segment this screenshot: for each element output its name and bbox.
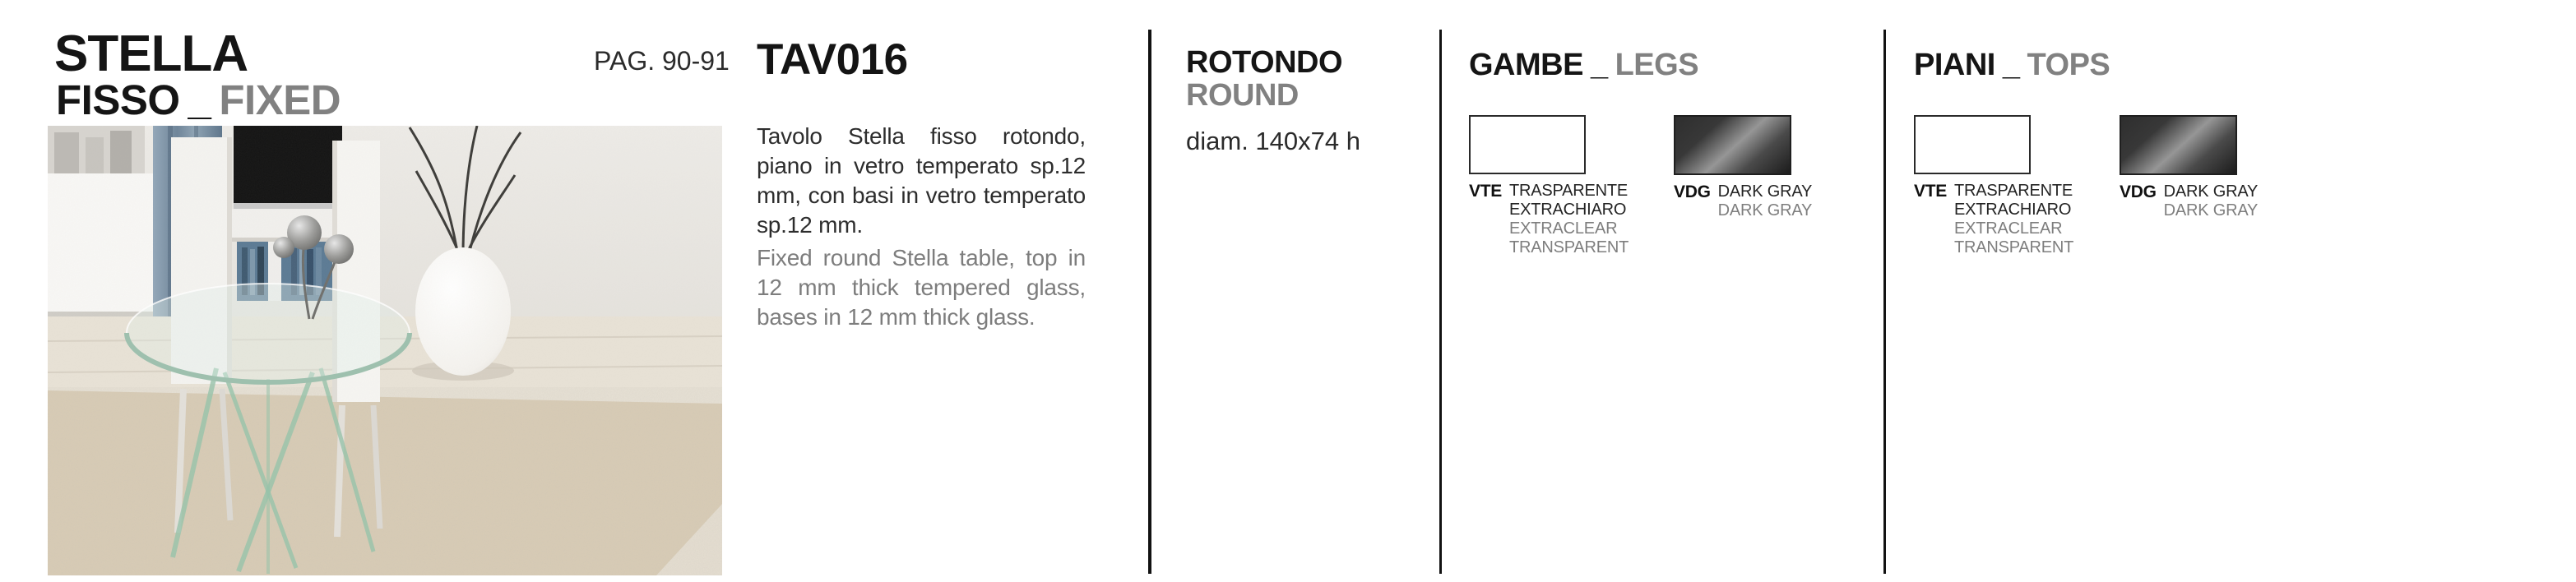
swatch-dark-gray <box>2120 115 2237 175</box>
swatch-label: VTE TRASPARENTE EXTRACHIARO EXTRACLEAR T… <box>1914 182 2120 257</box>
column-divider <box>1148 30 1151 574</box>
tops-swatch-vte: VTE TRASPARENTE EXTRACHIARO EXTRACLEAR T… <box>1914 115 2120 257</box>
tops-heading: PIANI_TOPS <box>1914 48 2110 83</box>
variant-title: FISSO_FIXED <box>56 76 341 124</box>
catalog-page: STELLA FISSO_FIXED PAG. 90-91 <box>0 0 2576 582</box>
legs-swatch-vte: VTE TRASPARENTE EXTRACHIARO EXTRACLEAR T… <box>1469 115 1675 257</box>
legs-heading: GAMBE_LEGS <box>1469 48 1698 83</box>
swatch-label: VTE TRASPARENTE EXTRACHIARO EXTRACLEAR T… <box>1469 182 1675 257</box>
swatch-label: VDG DARK GRAY DARK GRAY <box>1674 182 1879 220</box>
swatch-name-en: TRANSPARENT <box>1954 238 2073 257</box>
swatch-extraclear <box>1914 115 2031 174</box>
swatch-code: VTE <box>1914 182 1947 257</box>
swatch-dark-gray <box>1674 115 1791 175</box>
swatch-extraclear <box>1469 115 1586 174</box>
column-divider <box>1883 30 1886 574</box>
swatch-code: VDG <box>1674 182 1711 220</box>
photo-scene <box>48 126 722 575</box>
swatch-name-en: EXTRACLEAR <box>1954 219 2073 238</box>
swatch-name-en: TRANSPARENT <box>1509 238 1629 257</box>
product-photo <box>48 126 722 575</box>
page-title: STELLA <box>54 25 248 83</box>
tops-title-en: TOPS <box>2027 48 2110 82</box>
shape-heading: ROTONDO ROUND <box>1186 46 1342 112</box>
swatch-name-en: DARK GRAY <box>2164 201 2259 220</box>
swatch-code: VDG <box>2120 182 2157 220</box>
legs-swatch-vdg: VDG DARK GRAY DARK GRAY <box>1674 115 1879 220</box>
product-code: TAV016 <box>757 35 908 85</box>
swatch-name-it: EXTRACHIARO <box>1954 201 2073 219</box>
swatch-name-it: TRASPARENTE <box>1509 182 1629 201</box>
swatch-code: VTE <box>1469 182 1502 257</box>
swatch-name-en: DARK GRAY <box>1718 201 1813 220</box>
swatch-name-it: DARK GRAY <box>1718 182 1813 201</box>
swatch-name-it: EXTRACHIARO <box>1509 201 1629 219</box>
legs-title-it: GAMBE <box>1469 48 1583 82</box>
swatch-name-it: TRASPARENTE <box>1954 182 2073 201</box>
shape-label-it: ROTONDO <box>1186 46 1342 79</box>
variant-it: FISSO <box>56 76 180 123</box>
swatch-name-en: EXTRACLEAR <box>1509 219 1629 238</box>
tops-swatch-vdg: VDG DARK GRAY DARK GRAY <box>2120 115 2325 220</box>
variant-en: FIXED <box>219 76 341 123</box>
description-english: Fixed round Stella table, top in 12 mm t… <box>757 243 1086 332</box>
shape-dimensions: diam. 140x74 h <box>1186 127 1360 156</box>
tops-title-it: PIANI <box>1914 48 1995 82</box>
swatch-name-it: DARK GRAY <box>2164 182 2259 201</box>
tops-title-separator: _ <box>1995 48 2027 82</box>
legs-title-separator: _ <box>1583 48 1615 82</box>
page-reference: PAG. 90-91 <box>594 46 730 76</box>
swatch-label: VDG DARK GRAY DARK GRAY <box>2120 182 2325 220</box>
description-italian: Tavolo Stella fisso rotondo, piano in ve… <box>757 122 1086 240</box>
shape-label-en: ROUND <box>1186 79 1342 112</box>
variant-separator: _ <box>180 76 220 123</box>
column-divider <box>1439 30 1442 574</box>
legs-title-en: LEGS <box>1615 48 1698 82</box>
photo-grain <box>48 126 722 575</box>
